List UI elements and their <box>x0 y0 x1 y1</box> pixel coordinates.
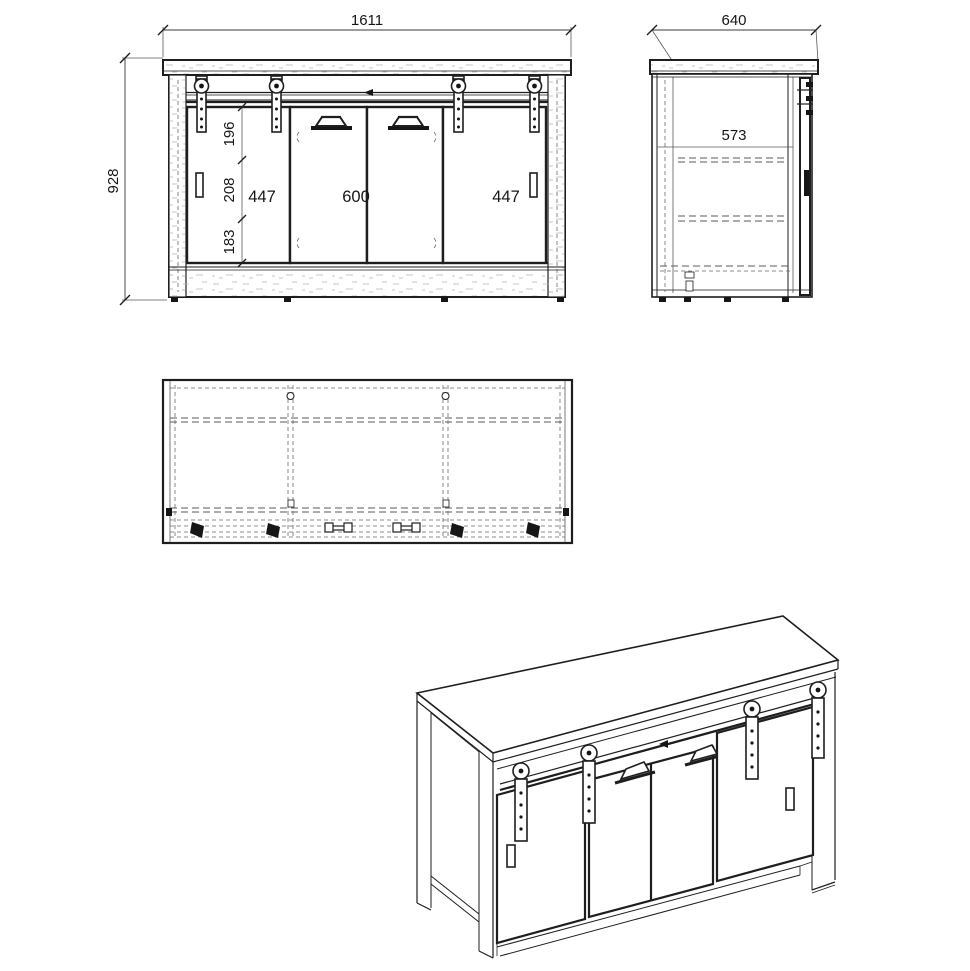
dim-section-middle: 208 <box>221 177 238 202</box>
perspective-view <box>417 616 838 958</box>
dim-inner-depth: 573 <box>721 127 746 144</box>
door-grip-slot <box>196 173 203 197</box>
front-height-dimension: 928 <box>105 53 167 305</box>
hanger-strap <box>528 76 542 132</box>
persp-sliding-door-left <box>497 771 585 943</box>
hanger-strap <box>270 76 284 132</box>
foot <box>171 297 178 302</box>
front-width-dimension: 1611 <box>158 12 576 57</box>
center-door-left <box>290 107 367 263</box>
front-view: 1611 928 <box>105 12 576 305</box>
persp-center-doors <box>589 745 723 917</box>
persp-sliding-door-right <box>717 707 813 881</box>
door-grip-slot <box>507 845 515 867</box>
center-door-right <box>367 107 443 263</box>
foot <box>284 297 291 302</box>
dim-section-bottom: 183 <box>221 229 238 254</box>
side-depth-dimension: 640 <box>647 12 821 62</box>
drawing-canvas: 1611 928 <box>0 0 970 971</box>
side-carcass <box>650 60 818 297</box>
foot <box>782 297 789 302</box>
foot <box>441 297 448 302</box>
side-door-profile <box>797 78 813 295</box>
hanger-strap <box>195 76 209 132</box>
foot <box>557 297 564 302</box>
dim-compartment-center: 600 <box>342 188 370 206</box>
top-view <box>163 380 572 543</box>
hanger-strap <box>810 682 826 758</box>
dim-overall-depth: 640 <box>721 12 746 29</box>
hanger-strap <box>513 763 529 841</box>
dim-compartment-left: 447 <box>248 188 276 206</box>
dim-overall-height: 928 <box>105 168 122 193</box>
door-grip-slot <box>530 173 537 197</box>
furniture-technical-drawing: 1611 928 <box>0 0 970 971</box>
leveler-foot-detail <box>685 272 694 291</box>
top-panel-grain <box>164 61 570 74</box>
side-view: 640 573 <box>647 12 821 302</box>
foot <box>724 297 731 302</box>
dim-section-top: 196 <box>221 121 238 146</box>
door-grip-slot <box>786 788 794 810</box>
dim-compartment-right: 447 <box>492 188 520 206</box>
dim-overall-width: 1611 <box>351 12 383 29</box>
door-grip-slot <box>804 170 809 196</box>
hanger-strap <box>452 76 466 132</box>
hanger-strap <box>581 745 597 823</box>
hanger-strap <box>744 701 760 779</box>
foot <box>659 297 666 302</box>
foot <box>684 297 691 302</box>
